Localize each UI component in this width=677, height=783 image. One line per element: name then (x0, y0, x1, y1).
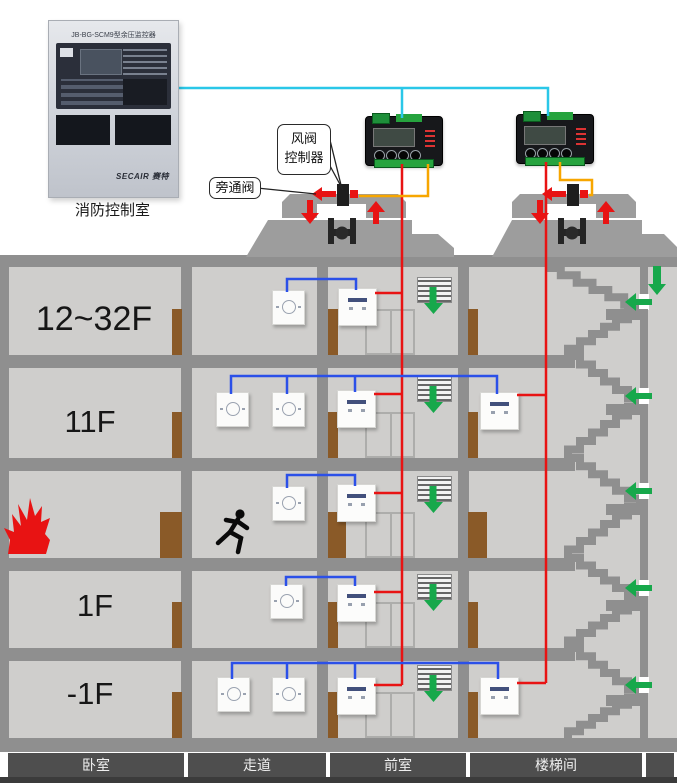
panel-indicator-leds (123, 49, 167, 75)
callout-leader (257, 188, 316, 194)
airflow-left-arrow-icon (636, 488, 652, 494)
airflow-left-arrow-icon (625, 293, 636, 311)
airflow-down-arrow-icon (424, 402, 443, 413)
wire (177, 88, 548, 116)
airflow-left-arrow-icon (625, 482, 636, 500)
airflow-down-arrow-icon (430, 584, 437, 600)
airflow-down-arrow-icon (424, 502, 443, 513)
wire (287, 279, 356, 292)
airflow-down-arrow-icon (648, 284, 666, 295)
bypass-valve-callout: 旁通阀 (209, 177, 261, 199)
airflow-left-arrow-icon (636, 682, 652, 688)
airflow-left-arrow-icon (625, 579, 636, 597)
control-room-label: 消防控制室 (48, 199, 177, 220)
damper-controller-callout-line2: 控制器 (278, 147, 330, 166)
wire (232, 663, 498, 679)
wire (359, 164, 428, 196)
damper-controller-callout-line1: 风阀 (278, 128, 330, 147)
airflow-down-arrow-icon (430, 675, 437, 691)
damper-controller-callout: 风阀 控制器 (277, 124, 331, 175)
wire (287, 475, 355, 488)
panel-window-left (56, 115, 110, 145)
airflow-down-arrow-icon (430, 386, 437, 402)
panel-lcd (80, 49, 122, 75)
panel-window-right (115, 115, 171, 145)
wire (231, 376, 497, 394)
airflow-down-arrow-icon (653, 266, 661, 284)
airflow-left-arrow-icon (636, 393, 652, 399)
airflow-down-arrow-icon (424, 600, 443, 611)
panel-power-button (60, 48, 73, 57)
airflow-down-arrow-icon (430, 287, 437, 303)
airflow-left-arrow-icon (625, 387, 636, 405)
airflow-left-arrow-icon (636, 299, 652, 305)
wire (560, 162, 592, 195)
panel-model-label: JB-BG-SCM9型余压监控器 (49, 30, 178, 40)
airflow-left-arrow-icon (625, 676, 636, 694)
panel-keypad (56, 43, 171, 109)
panel-subpanel (123, 79, 167, 105)
airflow-down-arrow-icon (430, 486, 437, 502)
brand-logo: SECAIR 赛特 (116, 171, 169, 182)
airflow-down-arrow-icon (424, 691, 443, 702)
callout-leader (329, 164, 343, 190)
pressure-smoke-control-system-diagram: 12~32F 11F 1F -1F 卧室 走道 前室 楼梯间 JB-BG-SCM… (0, 0, 677, 783)
pressure-monitor-cabinet: JB-BG-SCM9型余压监控器 SECAIR 赛特 (48, 20, 179, 198)
airflow-left-arrow-icon (636, 585, 652, 591)
wire (286, 577, 355, 586)
airflow-down-arrow-icon (424, 303, 443, 314)
